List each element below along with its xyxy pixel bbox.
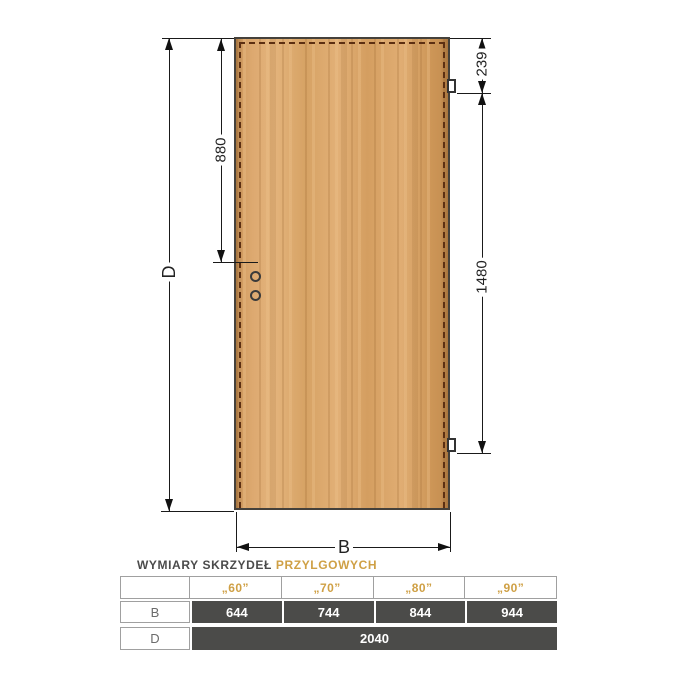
table-header-cell: „90”	[464, 576, 557, 599]
door-spec-sheet: D 880 239 1480 B WYMIARY SKRZYDEŁ PRZYLG…	[0, 0, 700, 700]
table-title-main: WYMIARY SKRZYDEŁ	[137, 558, 272, 572]
extension-line-width-right	[450, 512, 451, 552]
table-header-corner-cell	[120, 576, 190, 599]
dim-arrowhead-icon	[478, 441, 486, 453]
dim-arrowhead-icon	[478, 81, 486, 93]
table-header-cell: „60”	[189, 576, 282, 599]
dim-arrowhead-icon	[217, 250, 225, 262]
lock-hole-lower	[250, 290, 261, 301]
dim-label-hinge-top: 239	[474, 48, 491, 79]
row-label: D	[120, 627, 190, 650]
dim-arrowhead-icon	[165, 499, 173, 511]
table-header-cell: „80”	[373, 576, 466, 599]
dim-label-total-height: D	[159, 263, 179, 282]
extension-line-handle	[213, 262, 258, 263]
dim-arrowhead-icon	[165, 38, 173, 50]
table-value-cell: 744	[284, 601, 374, 623]
dim-arrowhead-icon	[217, 39, 225, 51]
rebate-dashed-line	[239, 42, 445, 508]
lock-hole-upper	[250, 271, 261, 282]
extension-line-hinge-bottom	[457, 453, 491, 454]
table-header-row: „60” „70” „80” „90”	[120, 576, 557, 599]
dim-arrowhead-icon	[438, 543, 450, 551]
hinge-bottom	[447, 438, 456, 452]
table-row-width: B 644 744 844 944	[120, 601, 557, 623]
table-title-accent: PRZYLGOWYCH	[276, 558, 377, 572]
extension-line-bottom-left	[161, 511, 234, 512]
dim-label-hinge-spacing: 1480	[474, 257, 491, 296]
dim-label-leaf-width: B	[335, 537, 353, 557]
hinge-top	[447, 79, 456, 93]
row-label: B	[120, 601, 190, 623]
dim-arrowhead-icon	[237, 543, 249, 551]
dim-label-handle-height: 880	[213, 134, 230, 165]
spec-table: „60” „70” „80” „90” B 644 744 844 944 D …	[120, 576, 557, 650]
table-value-cell-merged: 2040	[192, 627, 557, 650]
table-value-cell: 844	[376, 601, 466, 623]
door-leaf	[234, 37, 450, 510]
table-value-cell: 644	[192, 601, 282, 623]
table-title: WYMIARY SKRZYDEŁ PRZYLGOWYCH	[137, 558, 377, 572]
table-row-height: D 2040	[120, 627, 557, 650]
table-value-cell: 944	[467, 601, 557, 623]
table-header-cell: „70”	[281, 576, 374, 599]
dim-arrowhead-icon	[478, 93, 486, 105]
